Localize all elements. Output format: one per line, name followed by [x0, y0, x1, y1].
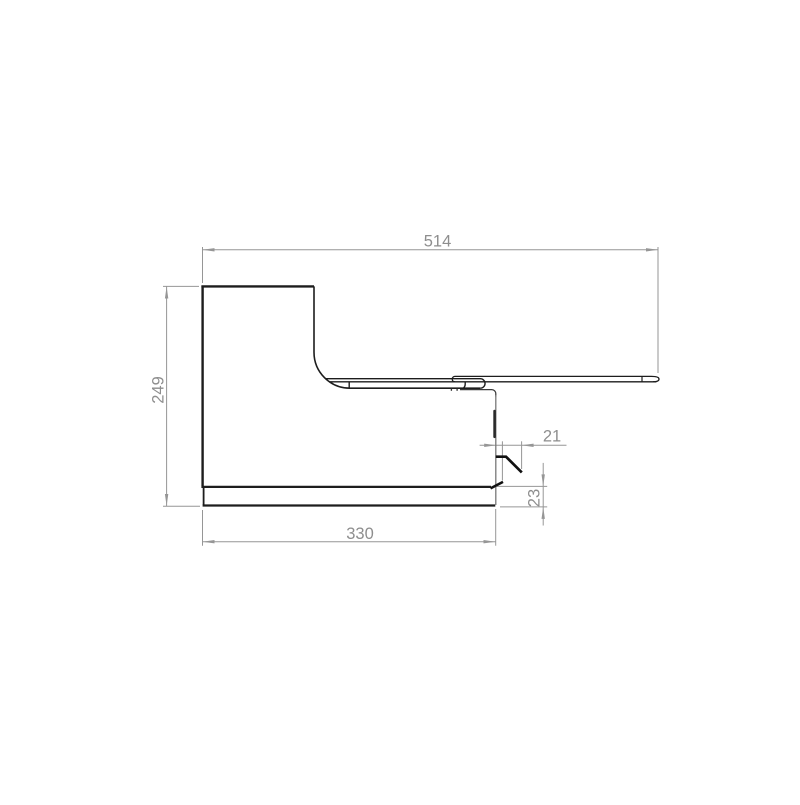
svg-text:249: 249	[150, 376, 168, 404]
svg-text:23: 23	[526, 489, 544, 507]
svg-text:330: 330	[346, 525, 374, 543]
svg-text:21: 21	[543, 428, 561, 446]
svg-text:514: 514	[424, 233, 452, 251]
